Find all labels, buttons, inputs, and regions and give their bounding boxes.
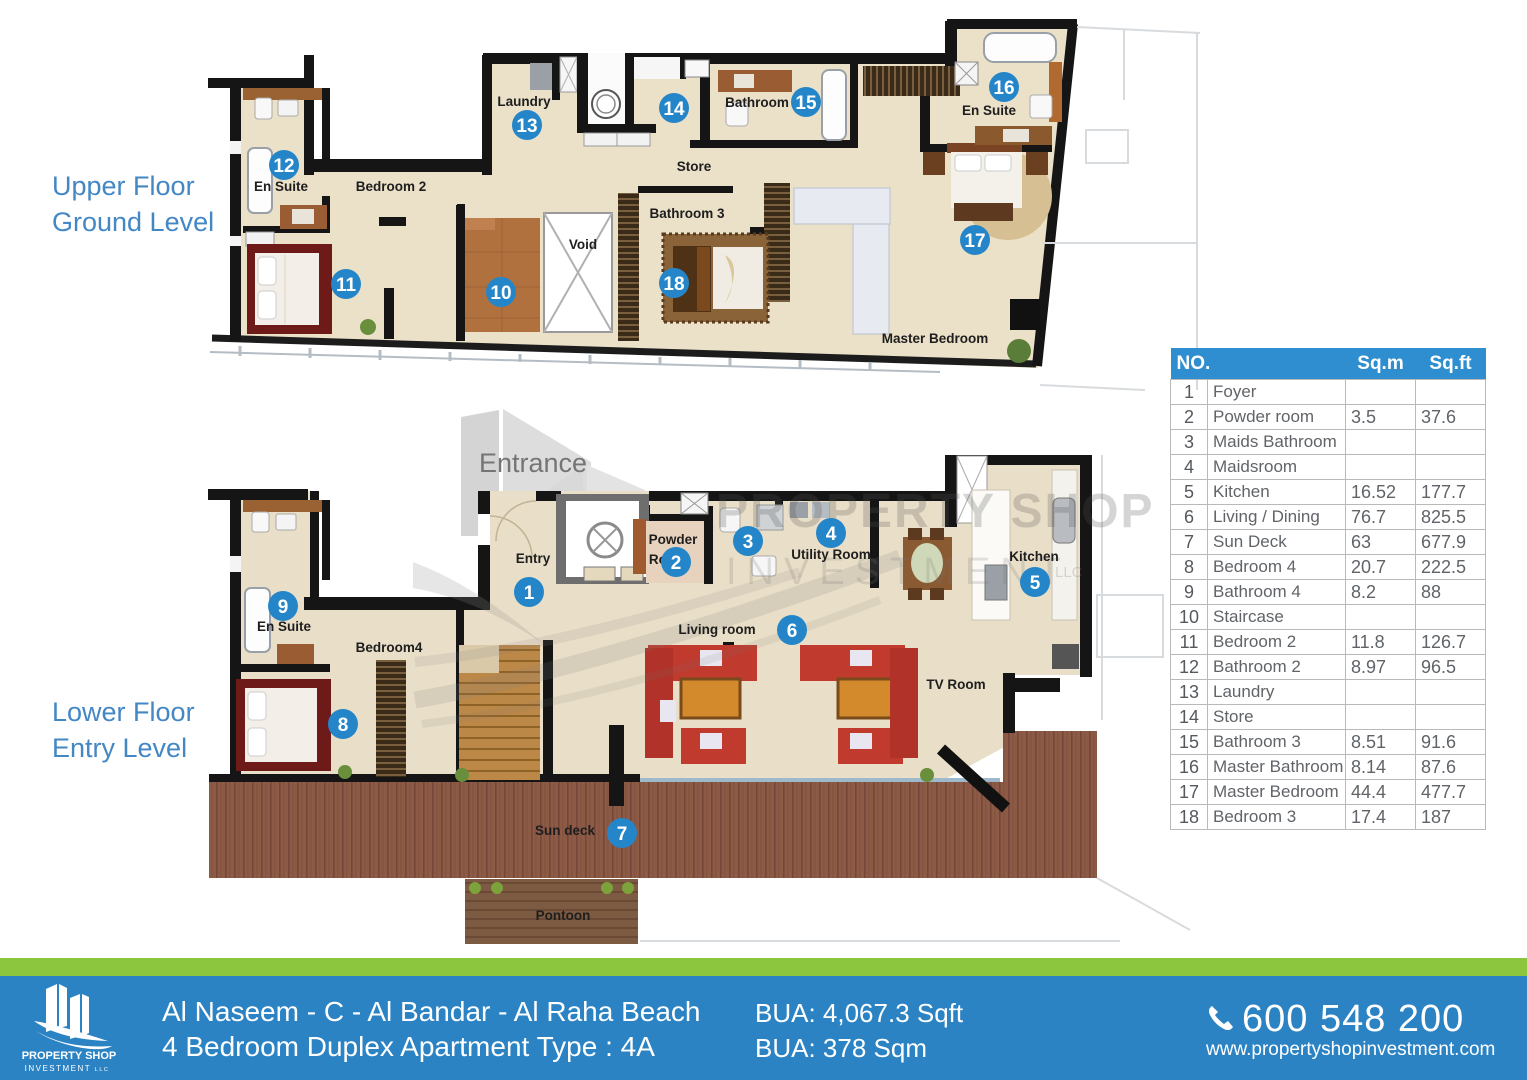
- svg-text:11: 11: [336, 275, 357, 296]
- svg-text:INVESTMENT LLC: INVESTMENT LLC: [25, 1064, 110, 1073]
- svg-text:Void: Void: [569, 237, 597, 252]
- svg-text:PROPERTY SHOP: PROPERTY SHOP: [22, 1050, 117, 1062]
- svg-text:Master Bedroom: Master Bedroom: [882, 331, 989, 346]
- svg-text:17: 17: [964, 231, 985, 252]
- svg-text:3: 3: [743, 532, 754, 553]
- svg-text:Kitchen: Kitchen: [1009, 549, 1059, 564]
- svg-text:4: 4: [826, 524, 837, 545]
- svg-text:5: 5: [1030, 573, 1041, 594]
- svg-text:15: 15: [795, 93, 817, 114]
- svg-text:Living room: Living room: [678, 622, 755, 637]
- svg-text:13: 13: [516, 116, 537, 137]
- svg-text:Entry: Entry: [516, 551, 551, 566]
- svg-text:Bedroom 2: Bedroom 2: [356, 179, 427, 194]
- svg-text:LLC: LLC: [1055, 564, 1083, 581]
- svg-text:8: 8: [338, 715, 349, 736]
- svg-text:Bathroom: Bathroom: [725, 95, 789, 110]
- svg-text:En Suite: En Suite: [962, 103, 1016, 118]
- svg-text:9: 9: [278, 597, 289, 618]
- svg-text:12: 12: [273, 156, 294, 177]
- svg-text:Store: Store: [677, 159, 712, 174]
- svg-text:10: 10: [490, 283, 511, 304]
- svg-text:Bedroom4: Bedroom4: [356, 640, 423, 655]
- svg-text:Utility Room: Utility Room: [791, 547, 871, 562]
- svg-text:7: 7: [617, 824, 628, 845]
- svg-text:Sun deck: Sun deck: [535, 823, 596, 838]
- svg-text:18: 18: [663, 274, 684, 295]
- svg-text:Laundry: Laundry: [497, 94, 551, 109]
- svg-text:6: 6: [787, 621, 798, 642]
- svg-text:Pontoon: Pontoon: [536, 908, 591, 923]
- svg-text:16: 16: [993, 78, 1014, 99]
- svg-text:PROPERTY SHOP: PROPERTY SHOP: [716, 485, 1155, 538]
- svg-text:2: 2: [671, 553, 682, 574]
- svg-text:En Suite: En Suite: [257, 619, 311, 634]
- svg-text:Powder: Powder: [649, 532, 699, 547]
- svg-text:Entrance: Entrance: [479, 448, 587, 478]
- svg-text:TV Room: TV Room: [926, 677, 985, 692]
- svg-text:Bathroom 3: Bathroom 3: [649, 206, 725, 221]
- svg-text:14: 14: [663, 99, 685, 120]
- svg-text:En Suite: En Suite: [254, 179, 308, 194]
- svg-text:1: 1: [524, 583, 535, 604]
